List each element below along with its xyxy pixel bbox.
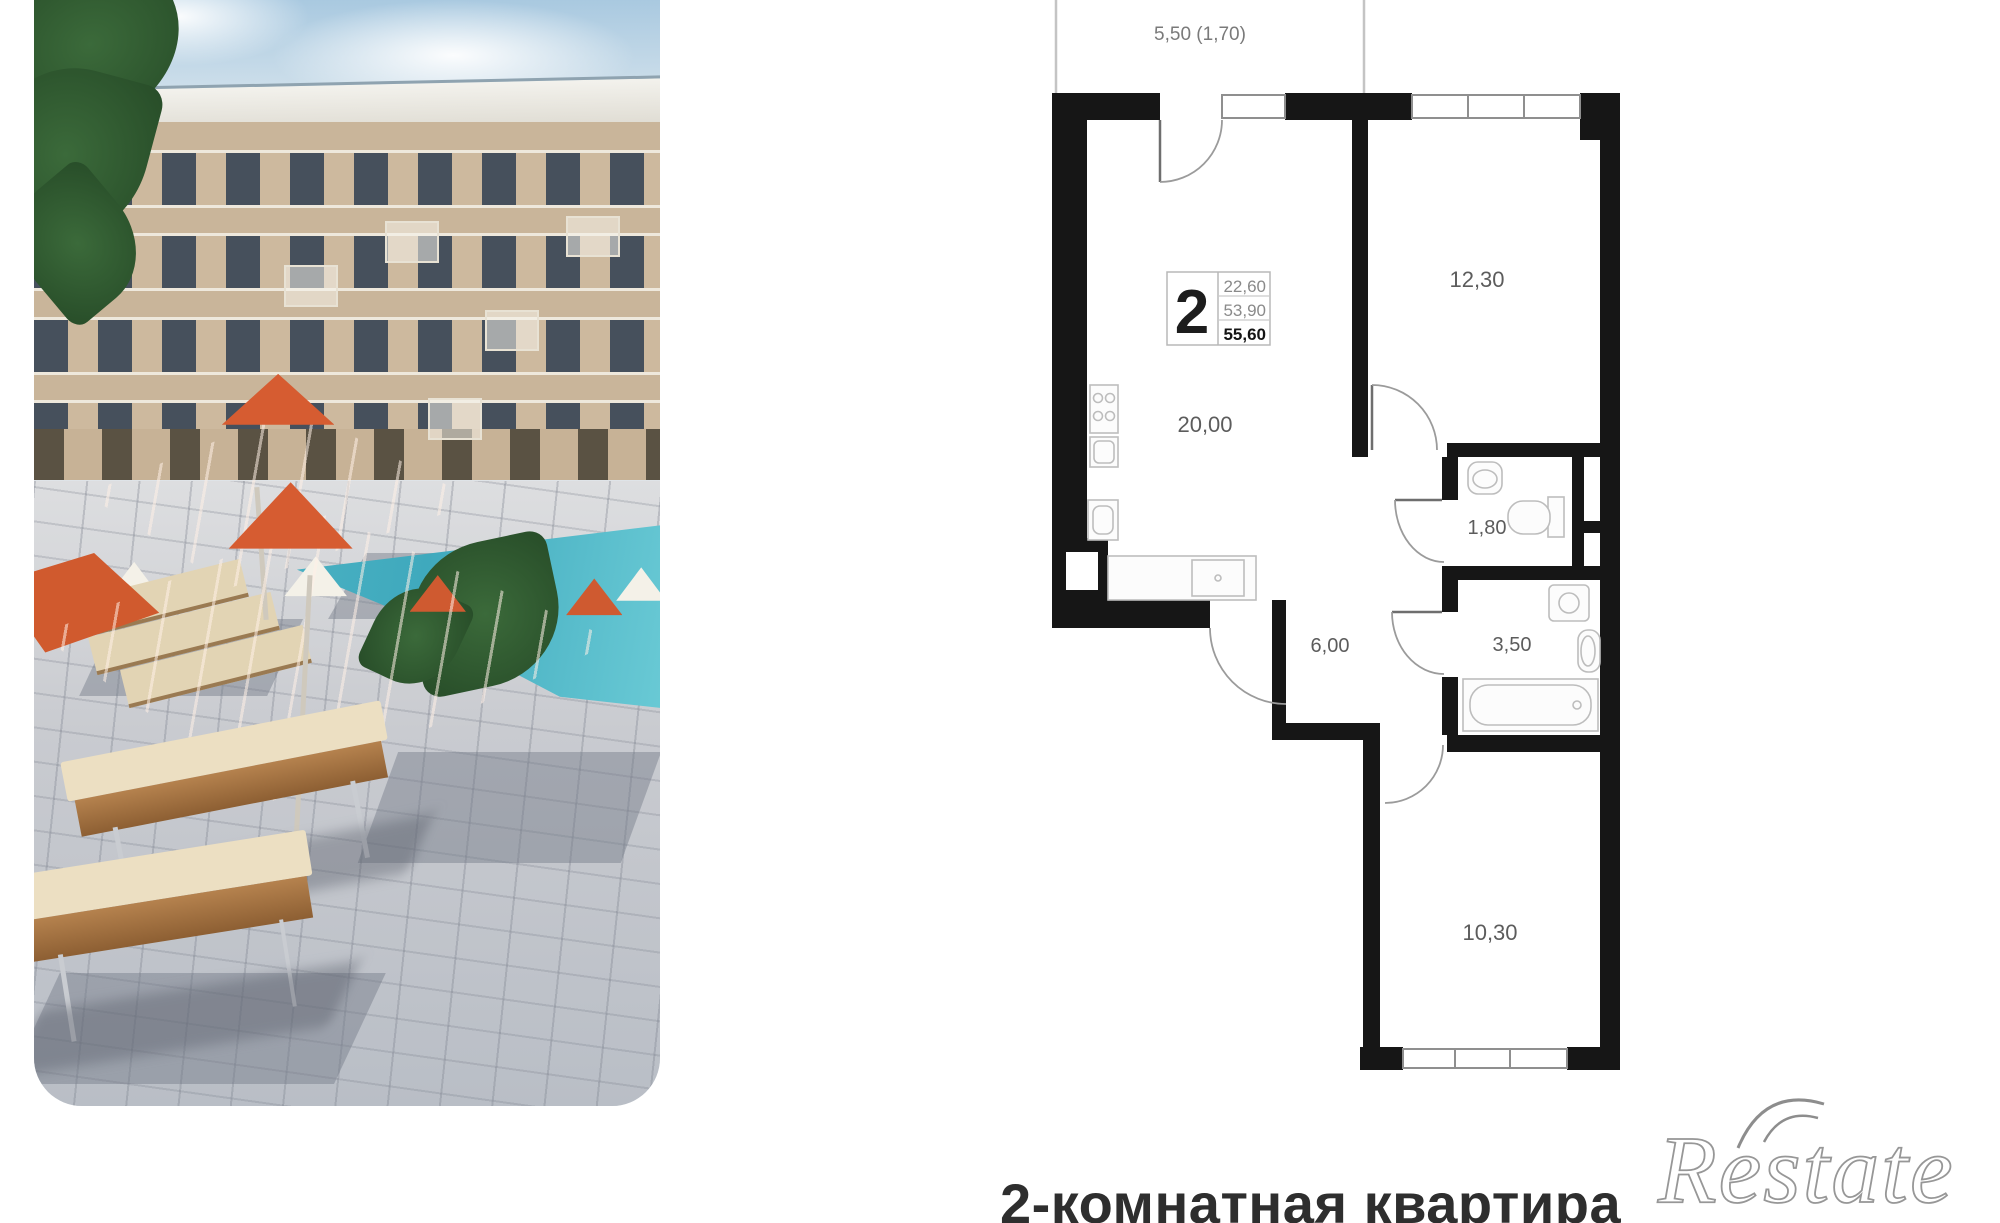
wc-area-label: 1,80 [1468,517,1507,539]
bathtub-drain [1573,701,1581,709]
balcony-railing [566,216,620,258]
balcony-area-label: 5,50 (1,70) [1154,24,1246,45]
room2-area-label: 10,30 [1462,920,1517,945]
listing-title: 2-комнатная квартира [1000,1176,1700,1223]
balcony-railing [385,221,439,263]
total-area-value: 55,60 [1223,325,1266,344]
duct-niche [1066,552,1098,590]
living-area-value: 22,60 [1223,277,1266,296]
window-row [34,317,660,375]
apartment-info-box: 2 22,60 53,90 55,60 [1167,272,1270,347]
windows [1222,95,1580,1068]
courtyard-photo[interactable] [34,0,660,1106]
restate-watermark: Restate [1652,1078,2000,1223]
balcony-outline [1056,0,1364,93]
balcony-railing [284,265,338,307]
floorplan-drawing[interactable]: 2 22,60 53,90 55,60 5,50 (1,70) 20,00 12… [1040,0,1640,1080]
bathroom-area-label: 3,50 [1493,634,1532,656]
door-leaves [1160,120,1442,612]
toilet-bowl [1508,501,1550,534]
area-without-summer-value: 53,90 [1223,301,1266,320]
room-count: 2 [1175,278,1209,347]
listing-page: 2 22,60 53,90 55,60 5,50 (1,70) 20,00 12… [0,0,2000,1223]
watermark-brand-text: Restate [1657,1116,1955,1223]
sink-faucet [1215,575,1221,581]
balcony-railing [485,310,539,352]
bedroom-area-label: 12,30 [1449,267,1504,292]
balcony-railing [428,398,482,440]
living-kitchen-area-label: 20,00 [1177,412,1232,437]
stove [1090,385,1118,433]
hallway-area-label: 6,00 [1311,635,1350,657]
door-swings [1160,120,1444,803]
